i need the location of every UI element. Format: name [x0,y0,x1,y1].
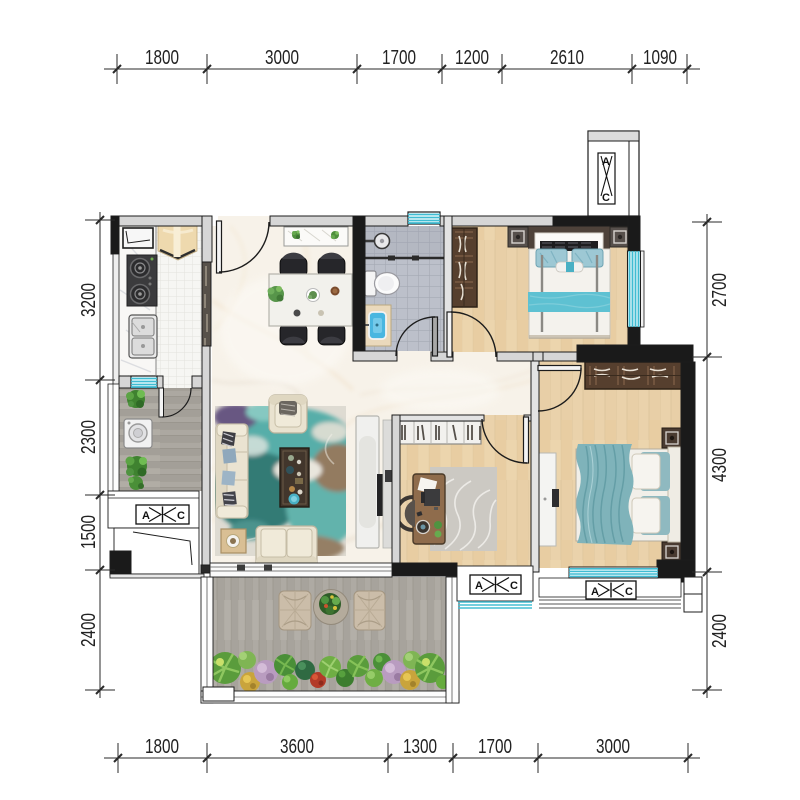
svg-text:1800: 1800 [145,736,179,758]
svg-text:1700: 1700 [478,736,512,758]
svg-text:C: C [625,586,633,598]
svg-text:A: A [475,580,483,592]
svg-text:3000: 3000 [596,736,630,758]
svg-text:1200: 1200 [455,47,489,69]
svg-text:2400: 2400 [78,613,100,647]
svg-text:2300: 2300 [78,420,100,454]
svg-text:C: C [510,580,518,592]
svg-text:2610: 2610 [550,47,584,69]
svg-text:3200: 3200 [78,283,100,317]
svg-text:A: A [142,510,150,522]
svg-text:2700: 2700 [709,273,731,307]
svg-text:A: A [591,586,599,598]
svg-text:1300: 1300 [403,736,437,758]
svg-text:1800: 1800 [145,47,179,69]
svg-text:C: C [602,192,610,204]
svg-text:1500: 1500 [78,515,100,549]
svg-text:1700: 1700 [382,47,416,69]
svg-text:2400: 2400 [709,614,731,648]
svg-text:1090: 1090 [643,47,677,69]
svg-text:3000: 3000 [265,47,299,69]
svg-text:4300: 4300 [709,448,731,482]
svg-text:C: C [177,510,185,522]
svg-text:3600: 3600 [280,736,314,758]
